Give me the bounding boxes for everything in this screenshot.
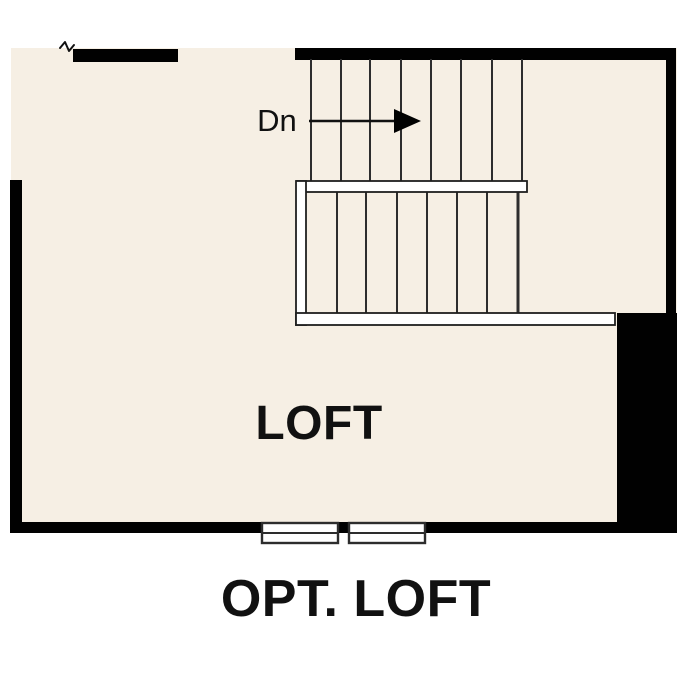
wall-top-left-segment — [73, 49, 178, 62]
wall-left — [10, 180, 22, 533]
stairs-down-label: Dn — [257, 103, 297, 138]
stair-bottom-rail — [296, 313, 615, 325]
wall-right-chase — [617, 313, 677, 533]
plan-caption: OPT. LOFT — [221, 570, 491, 628]
stair-side-rail — [296, 181, 306, 325]
floor-plan-canvas: Dn LOFT OPT. LOFT — [0, 0, 687, 687]
window-symbol — [262, 523, 338, 543]
wall-bottom — [10, 522, 677, 533]
room-label: LOFT — [255, 397, 382, 450]
window-symbol — [349, 523, 425, 543]
floor-plan-page: Dn LOFT OPT. LOFT — [0, 0, 687, 687]
wall-top — [295, 48, 675, 60]
wall-right — [666, 48, 676, 314]
stair-landing-rail — [297, 181, 527, 192]
